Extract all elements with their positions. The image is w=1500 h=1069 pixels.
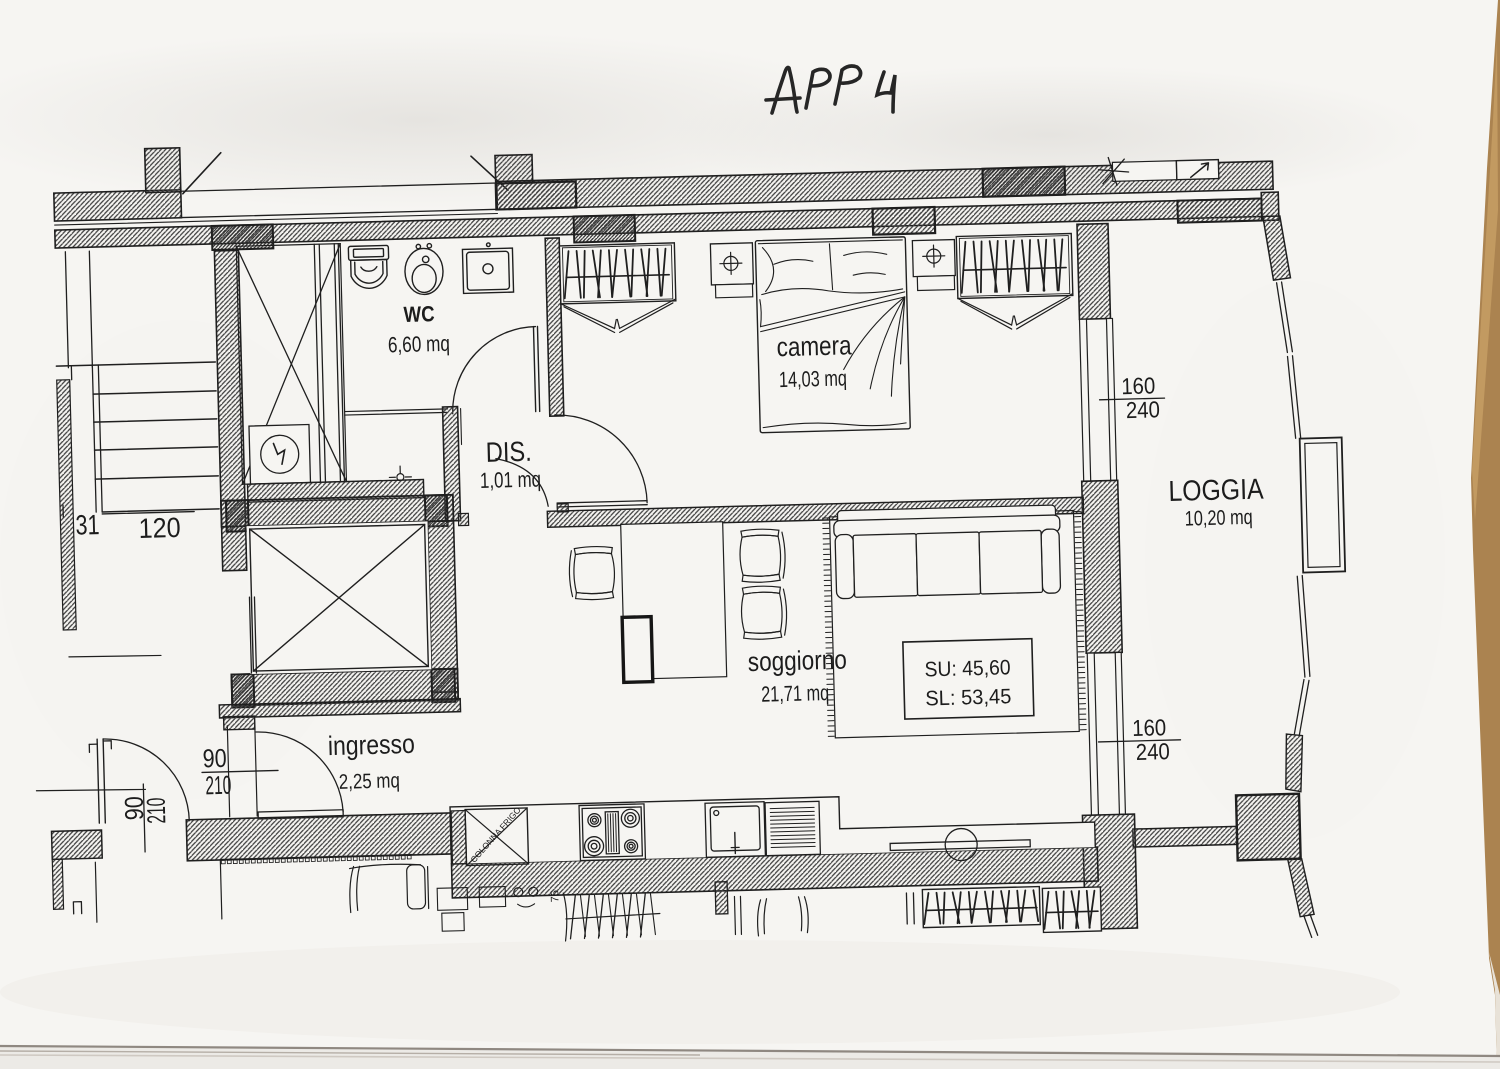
- svg-text:1,01 mq: 1,01 mq: [480, 466, 542, 493]
- svg-text:240: 240: [1135, 738, 1170, 765]
- svg-text:10,20 mq: 10,20 mq: [1184, 506, 1253, 531]
- svg-text:76: 76: [549, 890, 561, 903]
- svg-text:LOGGIA: LOGGIA: [1168, 474, 1264, 508]
- svg-text:90: 90: [202, 743, 227, 774]
- svg-text:6,60 mq: 6,60 mq: [388, 331, 451, 358]
- svg-text:120: 120: [138, 512, 181, 544]
- svg-text:ingresso: ingresso: [327, 729, 415, 761]
- svg-text:31: 31: [75, 509, 100, 541]
- svg-text:14,03 mq: 14,03 mq: [779, 365, 848, 392]
- svg-text:SL: 53,45: SL: 53,45: [925, 685, 1012, 710]
- svg-text:160: 160: [1121, 372, 1156, 399]
- svg-text:21,71 mq: 21,71 mq: [761, 680, 830, 707]
- svg-text:210: 210: [205, 770, 232, 801]
- svg-text:DIS.: DIS.: [485, 436, 532, 468]
- svg-text:2,25 mq: 2,25 mq: [339, 769, 401, 794]
- svg-text:240: 240: [1126, 396, 1161, 423]
- svg-text:SU: 45,60: SU: 45,60: [924, 656, 1011, 681]
- svg-text:camera: camera: [776, 330, 853, 362]
- svg-text:210: 210: [141, 797, 172, 824]
- svg-text:WC: WC: [403, 301, 435, 327]
- svg-text:soggiorno: soggiorno: [747, 645, 847, 678]
- svg-text:160: 160: [1132, 714, 1167, 741]
